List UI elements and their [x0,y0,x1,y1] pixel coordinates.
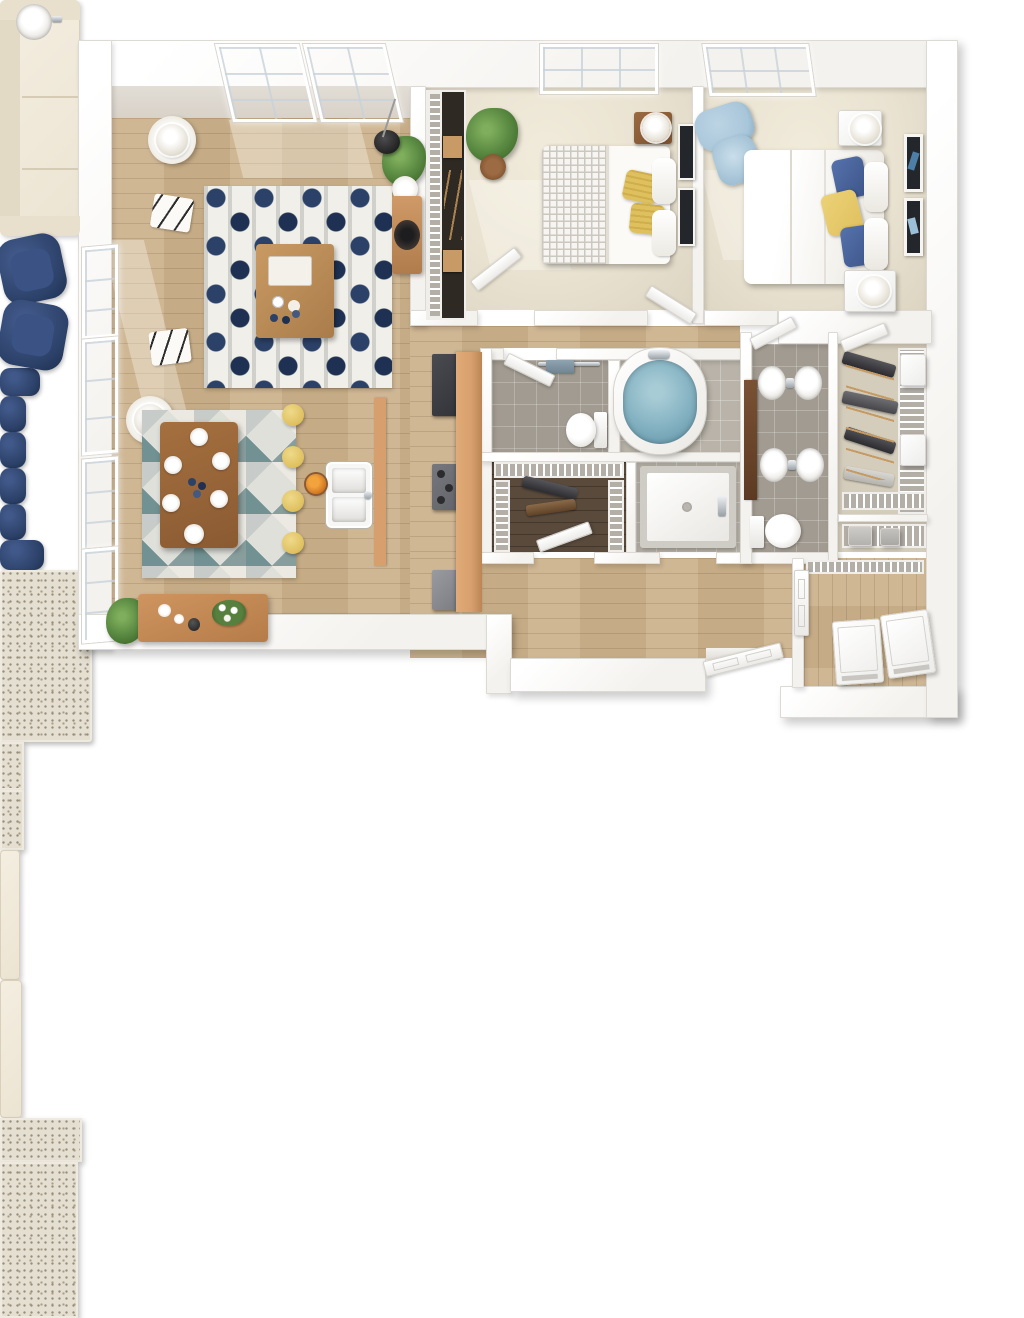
sunlight-patch [229,120,373,178]
tub-water [623,360,697,444]
dining-centerpiece [188,478,196,486]
kitchen-fridge [432,354,458,416]
washer-controls [842,674,878,681]
dining-chair [0,540,44,570]
closet-hanging-rods [444,170,462,240]
bed2-white-pillow-1 [864,162,888,212]
bed1-patterned-blanket [542,146,606,264]
kitchen-upper-cabinets [456,352,482,612]
bar-stool [282,404,304,426]
soaking-tub [614,348,706,454]
washer [832,618,884,685]
place-setting [212,452,230,470]
toilet-tank [750,516,764,548]
tub-faucet [648,350,670,359]
bed2-wall-art-2 [904,198,923,256]
left-window-3 [82,456,118,551]
sink-basin-2 [332,497,366,522]
closet2-basket [900,434,926,466]
closet1-shelf-top [494,462,624,478]
outer-wall-bottom-hall [510,658,706,692]
wall-bedrooms-south-b [534,310,648,326]
wall-closet1-shower [626,462,636,554]
bedroom1-window [540,44,658,94]
wall-bath2-closet2 [828,332,838,564]
armchair-seat [10,312,56,358]
coffee-table [256,244,334,338]
bed2-white-pillow-2 [864,218,888,270]
door-panel-line [712,657,739,671]
closet2-basket [900,354,926,386]
dining-chair [0,432,26,468]
coffee-table-tray [268,256,312,286]
arc-floor-lamp-shade [374,130,400,154]
bath2-toilet [750,514,802,550]
bed2-lamp-top [850,114,880,144]
sofa-backrest [0,0,20,236]
bed2-duvet-fold [790,150,792,284]
sofa-cushion-seam [22,168,78,170]
bar-stool [282,446,304,468]
dining-chair [0,504,26,540]
bath2-double-vanity [0,1162,78,1318]
dryer-lid [886,616,930,667]
bath1-faucet [52,16,62,22]
kitchen-counter-1 [0,742,24,790]
bed2-headboard [0,980,22,1118]
entry-console [138,594,268,642]
armchair-seat [8,246,55,293]
bath2-sink [758,366,786,400]
bed1-lamp [642,114,670,142]
bar-stool [282,532,304,554]
island-wood-side [374,398,386,566]
linen-box [848,526,872,546]
bar-stool [282,490,304,512]
bath1-vanity [0,1118,82,1162]
laundry-door-leaf [794,570,809,636]
dining-chair [0,368,40,396]
place-setting [210,490,228,508]
place-setting [190,428,208,446]
bath1-round-sink [16,4,52,40]
bath2-faucet [788,460,796,470]
closet2-shelf-bottom [842,492,926,510]
closet1-shelf-left [494,480,510,552]
console-vase-dark [188,618,200,631]
door-panel-line [798,605,805,627]
console-flowers [212,600,246,626]
sink-faucet [364,491,372,499]
coffee-table-cups [272,296,284,308]
bedroom2-window [702,44,815,96]
closet-wood-shelf [443,136,462,158]
bed1-white-pillow-2 [652,210,676,256]
sofa-cushion-seam [22,96,78,98]
media-console [392,196,422,274]
bath2-sink [760,448,788,482]
outer-wall-step [486,614,512,694]
coffee-table-decor [270,314,278,322]
console-fan-decor [394,220,420,250]
place-setting [162,494,180,512]
wall-bath-south-b [594,552,660,564]
bath2-cabinet-strip [744,380,757,500]
kitchen-range [432,464,458,510]
dining-chair [0,468,26,504]
place-setting [164,456,182,474]
fruit-bowl [306,474,326,494]
bed1-headboard [0,850,20,980]
sofa-pillow-1 [150,193,195,233]
wall-bedrooms-south-c [704,310,778,326]
upper-hallway-floor [410,326,740,348]
bath1-towel [546,360,574,373]
dryer-controls [893,664,929,674]
linen-box [880,528,900,546]
bed1-sheet-fold [606,146,609,264]
shower-stall [640,466,736,548]
washer-lid [837,625,878,674]
wall-closet2-linen [838,514,928,522]
bath1-toilet [566,410,608,450]
toilet-bowl [765,514,801,548]
console-vase-1 [158,604,171,617]
console-vase-2 [174,614,184,624]
bed2-lamp-bottom [858,276,890,306]
bed1-wall-art-1 [678,124,695,180]
art-accent [907,151,919,170]
dryer [880,609,936,679]
sofa-pillow-2 [148,328,192,367]
bedroom1-closet-strip [428,92,464,318]
floorplan-render [0,0,1024,736]
closet-wire-shelf [428,92,442,318]
kitchen-counter-2 [0,790,24,850]
bedroom1-plant-pot [480,154,506,180]
wall-bath1-closet1 [480,452,748,462]
bath2-sink [796,448,824,482]
living-window-top-1 [215,44,317,122]
door-panel-line [745,649,772,663]
closet1-shelf-right [608,480,624,552]
armchair-top [0,230,70,308]
shower-drain [682,502,692,512]
sink-basin-1 [332,468,366,493]
place-setting [184,524,204,544]
bed1-white-pillow-1 [652,158,676,204]
range-burners [437,470,445,478]
bed1-wall-art-2 [678,188,695,246]
bath2-sink [794,366,822,400]
left-window-2 [82,336,118,455]
shower-head [718,496,726,516]
toilet-bowl [566,413,596,447]
outer-wall-right [926,40,958,718]
left-window-1 [82,244,118,339]
armchair-bottom [0,297,71,373]
art-accent [907,217,919,234]
closet2-hanger-rod [846,360,894,480]
wall-bath-south-a [480,552,534,564]
dining-chair [0,396,26,432]
door-panel-line [798,579,805,599]
kitchen-dishwasher [432,570,458,610]
island-sink [328,464,370,526]
bed2-wall-art-1 [904,134,923,192]
laundry-shelf [806,560,924,574]
closet-wood-shelf [443,250,462,272]
bath2-faucet [786,378,794,388]
table-lamp-top [156,124,188,156]
